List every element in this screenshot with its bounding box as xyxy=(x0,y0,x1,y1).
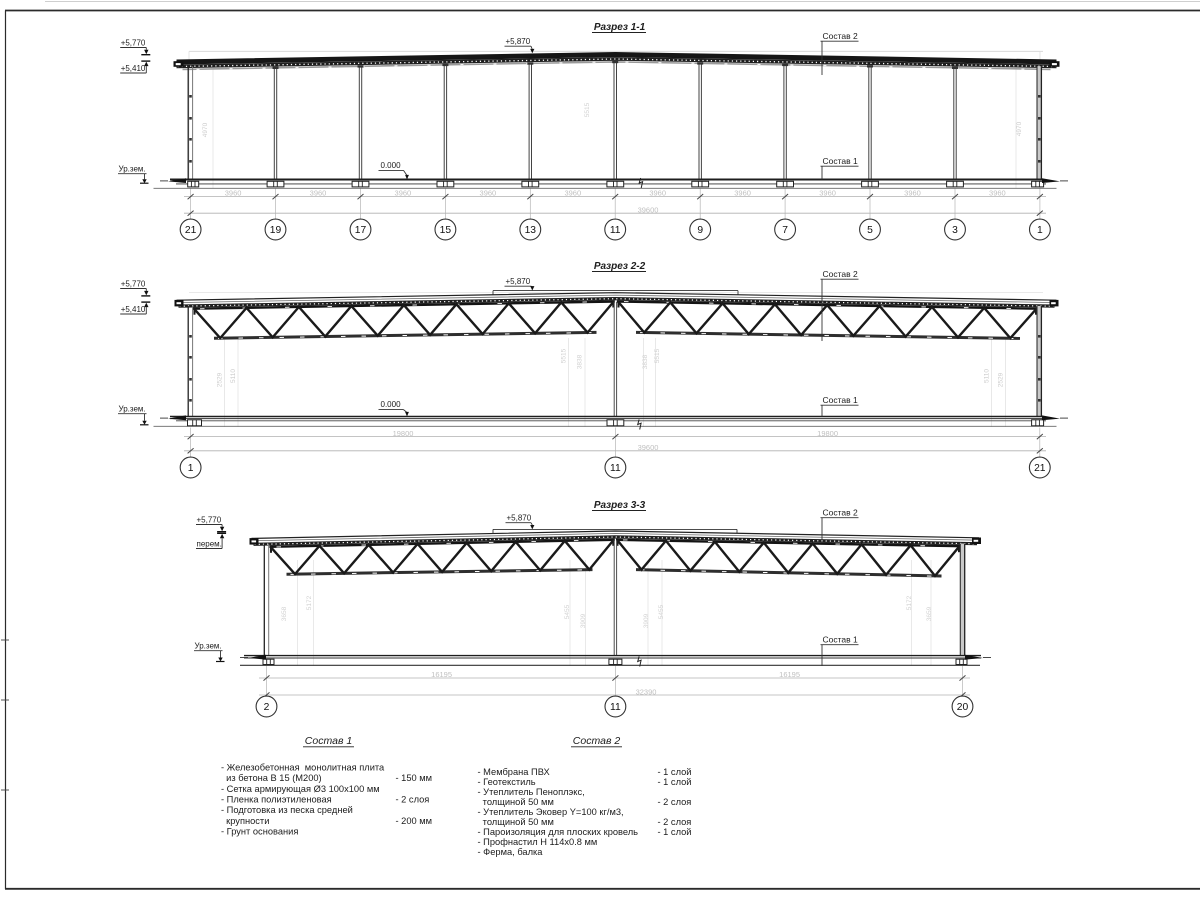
svg-text:11: 11 xyxy=(610,702,621,713)
svg-text:Состав 2: Состав 2 xyxy=(823,31,859,41)
svg-text:16195: 16195 xyxy=(779,670,800,679)
svg-text:+5,770: +5,770 xyxy=(121,279,146,288)
svg-text:5172: 5172 xyxy=(306,595,313,610)
svg-text:Ур.зем.: Ур.зем. xyxy=(119,404,146,413)
svg-text:3: 3 xyxy=(952,225,958,236)
svg-text:Состав 2: Состав 2 xyxy=(573,735,621,747)
svg-text:перем.: перем. xyxy=(197,539,222,548)
svg-text:2: 2 xyxy=(264,702,270,713)
svg-text:- Грунт основания: - Грунт основания xyxy=(221,827,298,837)
svg-text:- Ферма, балка: - Ферма, балка xyxy=(478,847,544,857)
svg-text:5515: 5515 xyxy=(654,348,661,363)
svg-text:- Утеплитель Пеноплэкс,: - Утеплитель Пеноплэкс, xyxy=(478,787,585,797)
svg-text:4970: 4970 xyxy=(1016,121,1023,136)
svg-text:- Подготовка из песка средней: - Подготовка из песка средней xyxy=(221,805,353,815)
svg-text:5110: 5110 xyxy=(230,369,237,383)
svg-text:3960: 3960 xyxy=(310,189,327,198)
svg-text:3838: 3838 xyxy=(577,354,584,369)
svg-text:- 150 мм: - 150 мм xyxy=(396,773,433,783)
svg-text:11: 11 xyxy=(610,463,621,474)
svg-text:5110: 5110 xyxy=(984,369,991,383)
svg-text:13: 13 xyxy=(525,225,537,236)
svg-text:3960: 3960 xyxy=(395,189,412,198)
svg-text:3838: 3838 xyxy=(642,354,649,369)
svg-text:- 2 слоя: - 2 слоя xyxy=(396,795,430,805)
svg-text:39600: 39600 xyxy=(638,205,659,214)
svg-text:Состав 1: Состав 1 xyxy=(823,635,859,645)
svg-text:21: 21 xyxy=(1034,463,1046,474)
svg-text:3909: 3909 xyxy=(643,613,650,628)
svg-text:3960: 3960 xyxy=(480,189,497,198)
svg-text:- Железобетонная монолитная п: - Железобетонная монолитная плита xyxy=(221,762,385,772)
svg-text:Состав 2: Состав 2 xyxy=(823,269,859,279)
svg-text:9: 9 xyxy=(697,225,703,236)
svg-text:Ур.зем.: Ур.зем. xyxy=(119,164,146,173)
svg-text:3960: 3960 xyxy=(225,189,242,198)
svg-text:Состав 1: Состав 1 xyxy=(305,735,352,747)
svg-text:толщиной 50 мм: толщиной 50 мм xyxy=(478,817,554,827)
svg-text:3960: 3960 xyxy=(819,189,836,198)
svg-text:5455: 5455 xyxy=(658,604,665,619)
svg-text:3659: 3659 xyxy=(926,606,933,621)
svg-text:- 1 слой: - 1 слой xyxy=(658,827,692,837)
svg-text:Разрез 1-1: Разрез 1-1 xyxy=(594,22,646,33)
svg-text:20: 20 xyxy=(957,702,969,713)
svg-text:Разрез 3-3: Разрез 3-3 xyxy=(594,500,646,511)
svg-text:0.000: 0.000 xyxy=(381,400,402,409)
svg-text:+5,770: +5,770 xyxy=(121,38,146,47)
svg-text:- Геотекстиль: - Геотекстиль xyxy=(478,777,536,787)
svg-text:19800: 19800 xyxy=(817,429,838,438)
svg-text:3658: 3658 xyxy=(281,606,288,621)
svg-text:19: 19 xyxy=(270,225,282,236)
svg-text:толщиной 50 мм: толщиной 50 мм xyxy=(478,797,554,807)
svg-text:крупности: крупности xyxy=(221,816,269,826)
svg-text:5515: 5515 xyxy=(561,348,568,363)
svg-text:21: 21 xyxy=(185,225,197,236)
svg-text:0.000: 0.000 xyxy=(381,161,402,170)
svg-text:11: 11 xyxy=(610,225,621,236)
svg-text:+5,870: +5,870 xyxy=(507,513,532,522)
svg-text:Состав 1: Состав 1 xyxy=(823,156,859,166)
svg-text:- 2 слоя: - 2 слоя xyxy=(658,797,692,807)
svg-text:- 2 слоя: - 2 слоя xyxy=(658,817,692,827)
svg-text:3960: 3960 xyxy=(734,189,751,198)
svg-text:5455: 5455 xyxy=(564,604,571,619)
svg-text:15: 15 xyxy=(440,225,452,236)
svg-text:- Утеплитель Эковер Y=100 кг/м: - Утеплитель Эковер Y=100 кг/м3, xyxy=(478,807,624,817)
svg-text:- Сетка армирующая Ø3 100х100: - Сетка армирующая Ø3 100х100 мм xyxy=(221,784,380,794)
svg-text:3960: 3960 xyxy=(989,189,1006,198)
svg-text:+5,410: +5,410 xyxy=(121,305,146,314)
svg-text:+5,410: +5,410 xyxy=(121,64,146,73)
svg-text:32390: 32390 xyxy=(636,687,657,696)
svg-text:1: 1 xyxy=(188,463,194,474)
svg-text:- Профнастил Н 114х0.8 мм: - Профнастил Н 114х0.8 мм xyxy=(478,837,598,847)
svg-text:19800: 19800 xyxy=(393,429,414,438)
svg-text:- 1 слой: - 1 слой xyxy=(658,767,692,777)
svg-text:3960: 3960 xyxy=(564,189,581,198)
svg-text:- 1 слой: - 1 слой xyxy=(658,777,692,787)
svg-text:из бетона В 15 (М200): из бетона В 15 (М200) xyxy=(221,773,322,783)
svg-text:17: 17 xyxy=(355,225,367,236)
svg-text:Состав 1: Состав 1 xyxy=(823,395,859,405)
svg-text:7: 7 xyxy=(782,225,788,236)
svg-text:- Мембрана ПВХ: - Мембрана ПВХ xyxy=(478,767,550,777)
svg-text:Состав 2: Состав 2 xyxy=(823,508,859,518)
svg-text:- Пароизоляция для плоских кро: - Пароизоляция для плоских кровель xyxy=(478,827,639,837)
svg-text:16195: 16195 xyxy=(431,670,452,679)
svg-text:3960: 3960 xyxy=(904,189,921,198)
svg-text:2529: 2529 xyxy=(998,372,1005,387)
svg-text:3909: 3909 xyxy=(580,613,587,628)
svg-text:5172: 5172 xyxy=(906,595,913,610)
svg-text:2529: 2529 xyxy=(217,372,224,387)
svg-text:Ур.зем.: Ур.зем. xyxy=(195,641,222,650)
svg-text:1: 1 xyxy=(1037,225,1043,236)
svg-text:- 200 мм: - 200 мм xyxy=(396,816,433,826)
svg-text:- Пленка полиэтиленовая: - Пленка полиэтиленовая xyxy=(221,795,332,805)
svg-text:+5,870: +5,870 xyxy=(506,37,531,46)
svg-text:4970: 4970 xyxy=(202,122,209,137)
svg-text:5515: 5515 xyxy=(584,102,591,117)
svg-text:5: 5 xyxy=(867,225,873,236)
svg-text:Разрез 2-2: Разрез 2-2 xyxy=(594,261,646,272)
svg-text:+5,870: +5,870 xyxy=(506,277,531,286)
svg-text:39600: 39600 xyxy=(638,443,659,452)
svg-text:3960: 3960 xyxy=(649,189,666,198)
svg-text:+5,770: +5,770 xyxy=(197,515,222,524)
